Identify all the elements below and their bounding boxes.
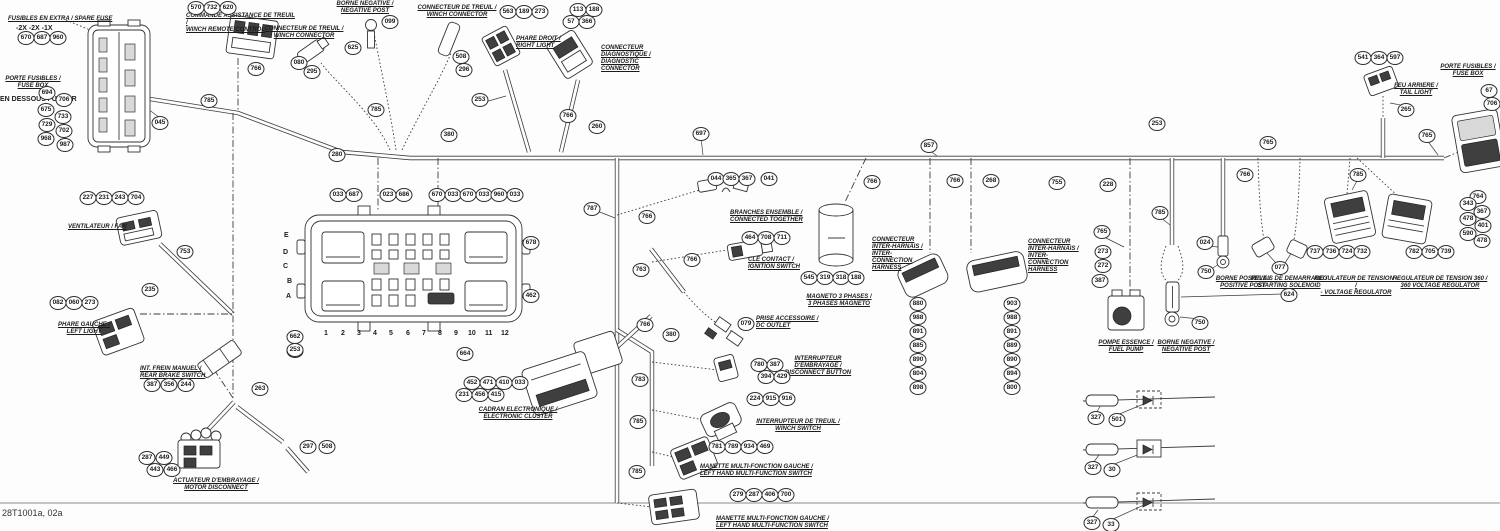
diode-assembly-1 [1083, 391, 1215, 408]
left-light-connector-glyph [91, 307, 145, 356]
wiring-diagram-sheet: FUSIBLES EN EXTRA / SPARE FUSE COMMANDE … [0, 0, 1500, 531]
fuel-pump-glyph [1108, 290, 1144, 330]
inter-harness-connector-1-glyph [895, 251, 950, 299]
winch-remote-control-glyph [226, 15, 279, 59]
branch-wires-dotted [66, 20, 1402, 507]
tail-light-connector-glyph [1363, 66, 1399, 97]
wiring-artwork [0, 0, 1500, 531]
ignition-switch-glyph [727, 237, 773, 260]
diode-assembly-3 [1083, 493, 1215, 510]
multifunction-switch-1-glyph [669, 436, 718, 481]
starting-solenoid-glyph [1251, 236, 1308, 259]
winch-connector-2-glyph [437, 21, 461, 57]
dc-outlet-glyph [705, 317, 743, 346]
sheet-id: 28T1001a, 02a [2, 508, 63, 518]
fuse-box-right-glyph [1451, 108, 1500, 173]
connected-together-glyph [697, 179, 749, 193]
disconnect-button-glyph [713, 354, 739, 382]
electronic-cluster-glyph [518, 330, 631, 416]
voltage-regulator-2-glyph [1382, 194, 1433, 245]
negative-post-top-glyph [366, 20, 377, 49]
diode-assembly-2 [1083, 440, 1215, 457]
fan-connector-glyph [116, 210, 163, 246]
magneto-glyph [819, 204, 853, 266]
inter-harness-connector-2-glyph [965, 250, 1028, 293]
multifunction-switch-2-glyph [648, 489, 700, 525]
relay-box-glyph [297, 206, 530, 331]
positive-post-glyph [1217, 236, 1229, 268]
motor-disconnect-glyph [178, 428, 221, 468]
fuse-box-left-glyph [88, 20, 150, 152]
rear-brake-switch-glyph [197, 339, 243, 378]
voltage-regulator-1-glyph [1324, 190, 1377, 244]
winch-connector-1-glyph [296, 35, 330, 64]
negative-post-bottom-glyph [1165, 282, 1179, 326]
diagnostic-connector-glyph [546, 29, 594, 80]
right-light-connector-glyph [481, 25, 521, 66]
